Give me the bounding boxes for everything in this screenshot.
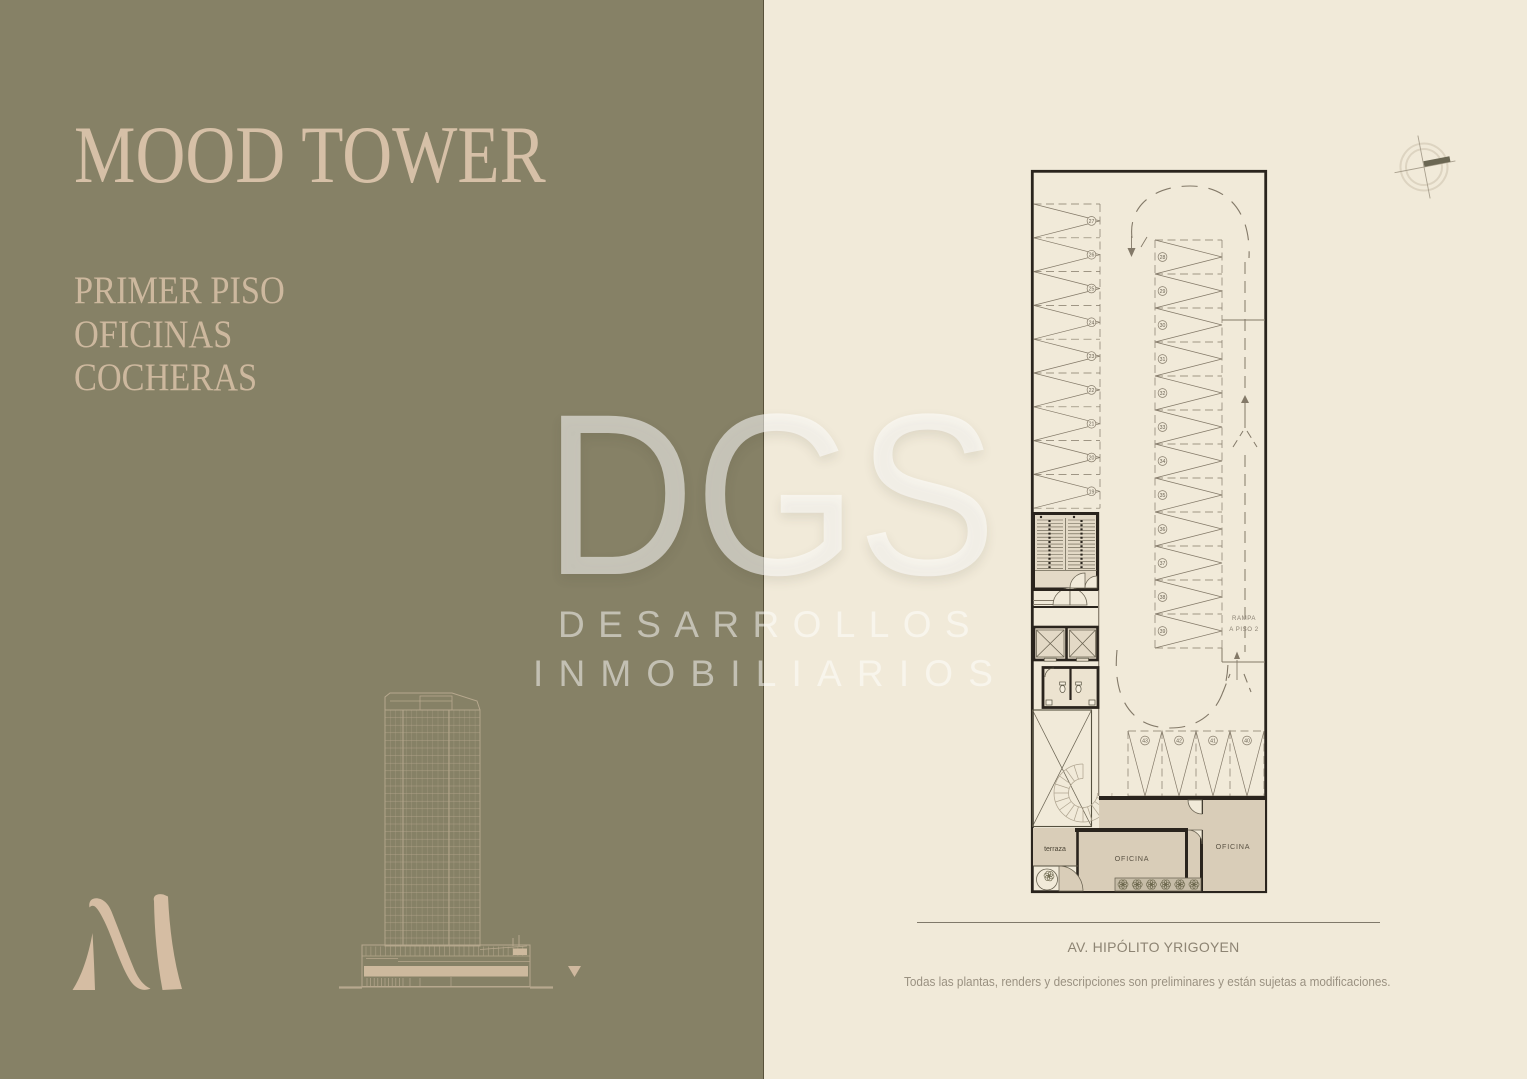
svg-text:A PISO 2: A PISO 2 <box>1229 626 1259 633</box>
svg-text:terraza: terraza <box>1044 846 1066 853</box>
svg-text:30: 30 <box>1160 323 1166 329</box>
svg-text:38: 38 <box>1160 595 1166 601</box>
svg-text:OFICINA: OFICINA <box>1216 842 1251 851</box>
svg-text:32: 32 <box>1160 391 1166 397</box>
svg-text:39: 39 <box>1160 629 1166 635</box>
svg-text:RAMPA: RAMPA <box>1232 615 1256 622</box>
svg-text:19: 19 <box>1089 489 1095 495</box>
svg-text:22: 22 <box>1089 388 1095 394</box>
svg-text:28: 28 <box>1160 255 1166 261</box>
svg-text:31: 31 <box>1160 357 1166 363</box>
svg-text:43: 43 <box>1142 739 1148 745</box>
svg-text:36: 36 <box>1160 527 1166 533</box>
svg-text:37: 37 <box>1160 561 1166 567</box>
svg-text:21: 21 <box>1089 422 1095 428</box>
svg-text:41: 41 <box>1210 739 1216 745</box>
svg-text:25: 25 <box>1089 287 1095 293</box>
svg-text:40: 40 <box>1244 739 1250 745</box>
svg-text:20: 20 <box>1089 456 1095 462</box>
svg-text:27: 27 <box>1089 219 1095 225</box>
svg-text:33: 33 <box>1160 425 1166 431</box>
svg-text:24: 24 <box>1089 320 1095 326</box>
svg-text:OFICINA: OFICINA <box>1115 854 1150 863</box>
svg-text:29: 29 <box>1160 289 1166 295</box>
svg-text:26: 26 <box>1089 253 1095 259</box>
svg-text:34: 34 <box>1160 459 1166 465</box>
svg-text:35: 35 <box>1160 493 1166 499</box>
svg-text:42: 42 <box>1176 739 1182 745</box>
svg-text:23: 23 <box>1089 354 1095 360</box>
